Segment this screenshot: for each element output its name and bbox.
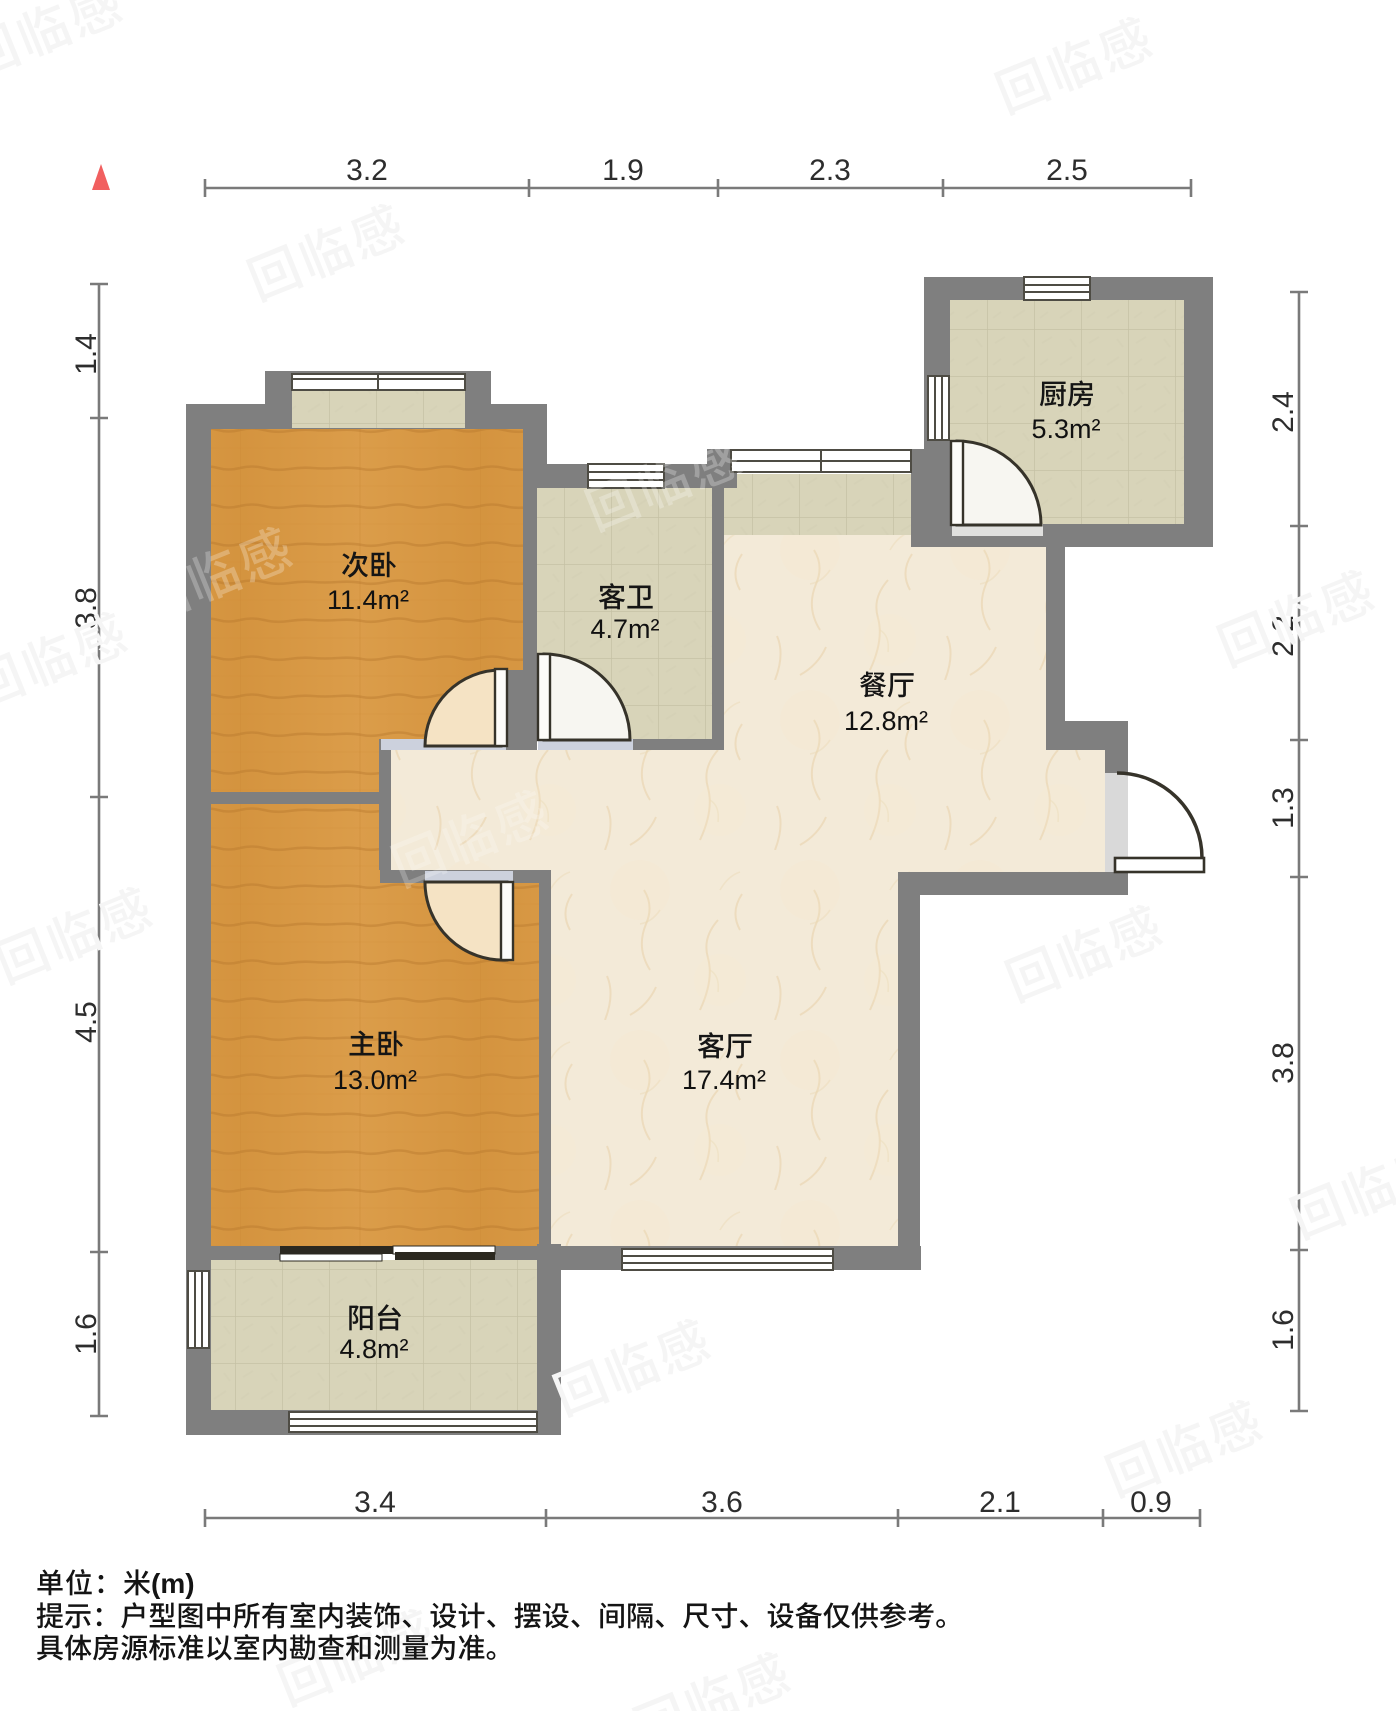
svg-text:3.4: 3.4 (354, 1486, 396, 1519)
svg-text:3.8: 3.8 (1267, 1042, 1300, 1084)
svg-text:0.9: 0.9 (1130, 1486, 1172, 1519)
svg-text:1.4: 1.4 (70, 333, 103, 375)
svg-text:3.6: 3.6 (701, 1486, 743, 1519)
svg-text:1.6: 1.6 (1267, 1309, 1300, 1351)
svg-text:13.0m²: 13.0m² (333, 1065, 417, 1095)
svg-text:1.9: 1.9 (602, 154, 644, 187)
svg-text:4.7m²: 4.7m² (590, 614, 659, 644)
svg-text:2.1: 2.1 (979, 1486, 1021, 1519)
svg-text:12.8m²: 12.8m² (844, 706, 928, 736)
svg-text:3.2: 3.2 (346, 154, 388, 187)
svg-text:4.8m²: 4.8m² (339, 1334, 408, 1364)
svg-text:(m): (m) (151, 1568, 195, 1599)
svg-text:2.3: 2.3 (809, 154, 851, 187)
svg-text:11.4m²: 11.4m² (327, 585, 409, 615)
svg-text:1.3: 1.3 (1267, 787, 1300, 829)
svg-text:17.4m²: 17.4m² (682, 1065, 766, 1095)
svg-text:4.5: 4.5 (70, 1001, 103, 1043)
svg-text:1.6: 1.6 (70, 1313, 103, 1355)
svg-text:5.3m²: 5.3m² (1031, 414, 1100, 444)
svg-text:2.5: 2.5 (1046, 154, 1088, 187)
svg-text:2.4: 2.4 (1267, 391, 1300, 433)
